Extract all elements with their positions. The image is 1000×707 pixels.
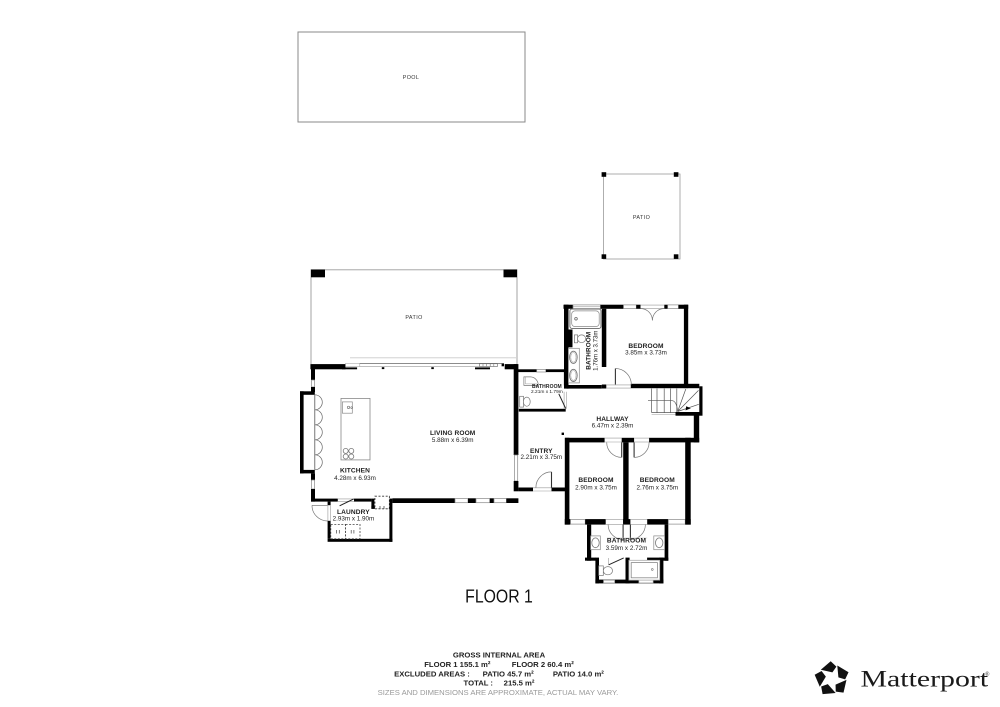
svg-text:2.76m x 3.75m: 2.76m x 3.75m (636, 484, 678, 491)
svg-text:KITCHEN: KITCHEN (340, 468, 370, 475)
svg-text:TOTAL : 215.5 m²: TOTAL : 215.5 m² (464, 679, 535, 688)
svg-text:2.90m x 3.75m: 2.90m x 3.75m (575, 484, 617, 491)
svg-text:PATIO: PATIO (405, 315, 422, 321)
svg-text:3.59m x 2.72m: 3.59m x 2.72m (606, 545, 648, 552)
svg-text:BEDROOM: BEDROOM (578, 477, 614, 484)
svg-text:FLOOR 1: FLOOR 1 (465, 585, 533, 606)
svg-text:4.28m x 6.93m: 4.28m x 6.93m (334, 475, 376, 482)
svg-text:FLOOR 1 155.1 m² FLOO: FLOOR 1 155.1 m² FLOOR 2 60.4 m² (424, 660, 574, 669)
svg-text:2.21m x 3.75m: 2.21m x 3.75m (520, 454, 562, 461)
svg-text:2.93m x 1.90m: 2.93m x 1.90m (333, 516, 375, 523)
svg-text:SIZES AND DIMENSIONS ARE APPRO: SIZES AND DIMENSIONS ARE APPROXIMATE, AC… (378, 688, 619, 697)
svg-text:1.76m x 3.73m: 1.76m x 3.73m (593, 331, 600, 371)
svg-text:3.85m x 3.73m: 3.85m x 3.73m (625, 349, 667, 356)
svg-text:EXCLUDED AREAS : PATIO 45: EXCLUDED AREAS : PATIO 45.7 m² PATIO 14.… (394, 669, 604, 678)
svg-text:POOL: POOL (403, 75, 420, 81)
svg-text:BEDROOM: BEDROOM (640, 477, 676, 484)
svg-text:BATHROOM: BATHROOM (607, 538, 647, 545)
svg-text:2.21m x 1.79m: 2.21m x 1.79m (531, 389, 563, 395)
svg-text:GROSS INTERNAL AREA: GROSS INTERNAL AREA (453, 651, 546, 660)
svg-text:6.47m x 2.39m: 6.47m x 2.39m (592, 423, 634, 430)
svg-text:Matterport: Matterport (861, 666, 989, 692)
svg-text:PATIO: PATIO (633, 215, 650, 221)
svg-text:®: ® (985, 671, 990, 678)
svg-text:5.88m x 6.39m: 5.88m x 6.39m (432, 437, 474, 444)
